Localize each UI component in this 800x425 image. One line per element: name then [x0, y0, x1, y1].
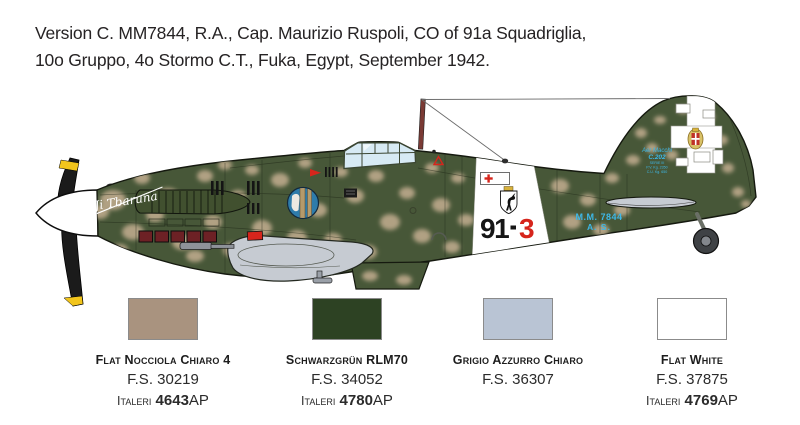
paint-name: Flat Nocciola Chiaro 4 [68, 353, 258, 367]
color-chip-nocciola [128, 298, 198, 340]
code-dash [511, 226, 517, 230]
spinner [36, 190, 98, 236]
paint-swatch-schwarzgrun: Schwarzgrün RLM70 F.S. 34052 Italeri 478… [252, 298, 442, 411]
stormo-badge [501, 187, 518, 214]
fs-number: F.S. 36307 [423, 370, 613, 389]
svg-text:A. S.: A. S. [587, 222, 611, 232]
painting-guide-page: { "header": { "line1": "Version C. MM784… [0, 0, 800, 425]
svg-text:C.U. Kg. 650: C.U. Kg. 650 [647, 170, 668, 174]
color-chip-schwarzgrun [312, 298, 382, 340]
squadron-code: 91 [480, 213, 509, 244]
svg-text:P.V. Kg. 2350: P.V. Kg. 2350 [646, 166, 667, 170]
paint-swatch-nocciola: Flat Nocciola Chiaro 4 F.S. 30219 Italer… [68, 298, 258, 411]
svg-text:SERIE III: SERIE III [650, 161, 665, 165]
fs-number: F.S. 30219 [68, 370, 258, 389]
red-wingtip-panel [247, 231, 262, 240]
antenna-wire-long [422, 99, 671, 100]
paint-swatch-white: Flat White F.S. 37875 Italeri 4769AP [597, 298, 787, 411]
paint-name: Flat White [597, 353, 787, 367]
paint-name: Grigio Azzurro Chiaro [423, 353, 613, 367]
gruppo-emblem [288, 187, 319, 219]
paint-name: Schwarzgrün RLM70 [252, 353, 442, 367]
svg-text:C.202: C.202 [648, 154, 666, 161]
color-chip-grigio [483, 298, 553, 340]
crown-icon [693, 128, 699, 132]
brand-line: Italeri 4780AP [252, 391, 442, 411]
exhaust-stacks [139, 231, 217, 242]
fuselage: Ji Tbaruna 91 [90, 96, 756, 289]
color-chip-white [657, 298, 727, 340]
tailplane [606, 197, 696, 208]
antenna-mast [418, 99, 425, 149]
svg-text:M.M. 7844: M.M. 7844 [575, 212, 622, 222]
wire-insulator [502, 159, 508, 164]
brand-line: Italeri 4643AP [68, 391, 258, 411]
data-plate [344, 189, 357, 198]
fs-number: F.S. 37875 [597, 370, 787, 389]
fs-number: F.S. 34052 [252, 370, 442, 389]
crown-icon [504, 187, 513, 191]
aircraft-number: 3 [519, 213, 535, 244]
brand-line: Italeri 4769AP [597, 391, 787, 411]
paint-swatch-grigio: Grigio Azzurro Chiaro F.S. 36307 [423, 298, 613, 391]
